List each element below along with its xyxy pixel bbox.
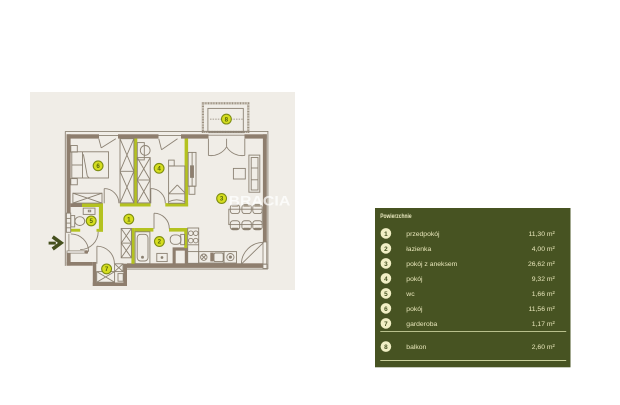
svg-text:9,32 m²: 9,32 m² — [532, 276, 556, 283]
svg-text:4,00 m²: 4,00 m² — [532, 246, 556, 253]
svg-text:4: 4 — [384, 276, 388, 283]
svg-text:2,60 m²: 2,60 m² — [532, 344, 556, 351]
svg-text:11,30 m²: 11,30 m² — [528, 231, 555, 238]
svg-text:8: 8 — [225, 116, 229, 123]
svg-text:1,66 m²: 1,66 m² — [532, 291, 556, 298]
svg-text:3: 3 — [384, 261, 388, 268]
svg-text:wc: wc — [405, 291, 415, 298]
svg-text:1,17 m²: 1,17 m² — [532, 321, 556, 328]
svg-text:przedpokój: przedpokój — [406, 231, 440, 238]
svg-text:2: 2 — [384, 246, 388, 253]
svg-text:6: 6 — [384, 306, 388, 313]
svg-text:26,62 m²: 26,62 m² — [528, 261, 556, 268]
svg-text:1: 1 — [127, 216, 131, 223]
svg-text:pokój z aneksem: pokój z aneksem — [406, 261, 457, 268]
svg-text:4: 4 — [157, 166, 161, 173]
svg-text:balkon: balkon — [406, 344, 426, 351]
svg-text:7: 7 — [105, 266, 109, 273]
svg-text:5: 5 — [89, 218, 93, 225]
svg-text:1: 1 — [384, 231, 388, 238]
svg-text:5: 5 — [384, 291, 388, 298]
svg-text:pokój: pokój — [406, 306, 423, 313]
svg-text:7: 7 — [384, 321, 388, 328]
svg-text:BRACIA: BRACIA — [229, 194, 291, 210]
svg-text:11,56 m²: 11,56 m² — [528, 306, 555, 313]
svg-text:łazienka: łazienka — [406, 246, 431, 253]
svg-text:2: 2 — [158, 239, 162, 246]
svg-text:garderoba: garderoba — [406, 321, 437, 328]
svg-text:Powierzchnie: Powierzchnie — [380, 213, 412, 220]
svg-text:8: 8 — [384, 344, 388, 351]
svg-text:3: 3 — [220, 196, 224, 203]
svg-text:pokój: pokój — [406, 276, 423, 283]
svg-text:6: 6 — [96, 163, 100, 170]
